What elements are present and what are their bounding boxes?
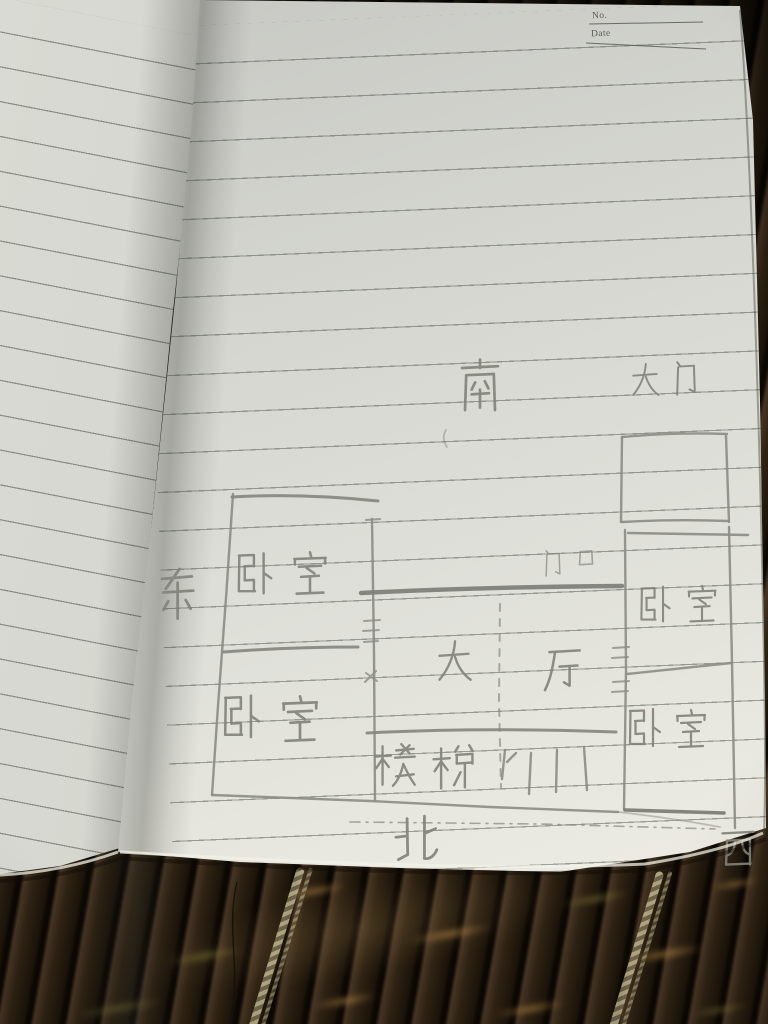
no-label: No. [592,11,608,22]
photo-of-notebook: No. Date [0,0,768,1024]
date-label: Date [591,29,611,40]
